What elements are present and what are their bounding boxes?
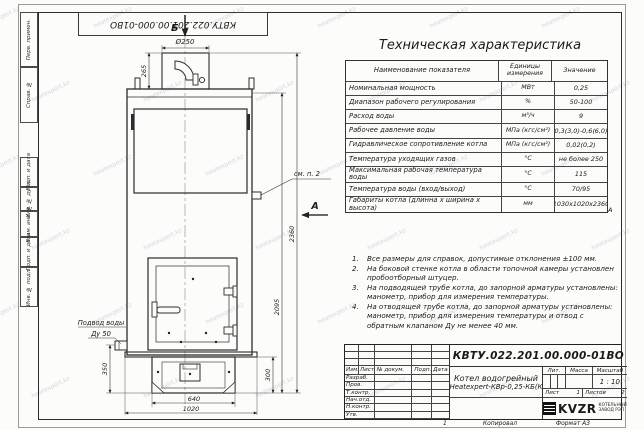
- water-inlet-label-1: Подвод воды: [78, 319, 124, 327]
- tb-sheets-label: Листов: [585, 390, 606, 396]
- spec-table: Наименование показателя Единицы измерени…: [345, 60, 608, 213]
- margin-box-podp-data-2: Подп. и дата: [20, 237, 38, 267]
- spec-cell: не более 250: [555, 153, 607, 166]
- kvzr-logo-subtext: КОТЕЛЬНЫЙ ЗАВОД РЭП: [599, 404, 627, 414]
- tb-signature-label: Утв.: [345, 412, 375, 419]
- dim-chimney-diameter: Ø250: [175, 38, 195, 46]
- tb-signature-row: Нач.отд.: [345, 397, 449, 404]
- tb-col-data: Дата: [432, 366, 449, 375]
- view-a-label: А: [310, 201, 318, 212]
- tb-signature-cell: [412, 397, 432, 404]
- spec-cell: Гидравлическое сопротивление котла: [346, 139, 502, 152]
- tb-scale-label: Масштаб: [593, 367, 627, 375]
- tb-signature-cell: [432, 404, 449, 411]
- tb-product-name: Котел водогрейный Heatexpert-КВр-0,25-КБ…: [450, 367, 542, 398]
- note-item: 1.Все размеры для справок, допустимые от…: [352, 254, 618, 263]
- spec-cell: Температура воды (вход/выход): [346, 183, 502, 196]
- spec-cell: Рабочее давление воды: [346, 124, 502, 137]
- dim-inlet-height: 350: [101, 363, 109, 375]
- spec-cell: 0,02(0,2): [555, 139, 607, 152]
- flue-cap: [199, 77, 204, 82]
- margin-label: Инв. № подл.: [26, 268, 32, 306]
- tb-signature-label: Т.контр.: [345, 390, 375, 397]
- tb-signature-row: Пров.: [345, 382, 449, 389]
- lifting-lug-right: [249, 78, 254, 89]
- product-name-line1: Котел водогрейный: [454, 374, 538, 383]
- spec-cell: 115: [555, 167, 607, 182]
- dim-base-width: 640: [188, 395, 200, 403]
- tb-signature-row: Т.контр.: [345, 390, 449, 397]
- tb-mass-label: Масса: [566, 367, 593, 375]
- margin-label: Перв. примен.: [26, 19, 32, 60]
- spec-col-name: Наименование показателя: [346, 61, 499, 81]
- dim-overall-width: 1020: [183, 405, 200, 413]
- furnace-door: [148, 258, 237, 350]
- spec-cell: Максимальная рабочая температура воды: [346, 167, 502, 182]
- spec-cell: 1030х1020х2360: [555, 197, 607, 212]
- tb-signature-cell: [375, 382, 413, 389]
- spec-cell: Номинальная мощность: [346, 82, 502, 95]
- tb-signature-cell: [432, 390, 449, 397]
- spec-cell: 50-100: [555, 96, 607, 109]
- spec-cell: м³/ч: [502, 110, 555, 123]
- tb-signature-cell: [412, 390, 432, 397]
- spec-cell: °С: [502, 183, 555, 196]
- title-block: Изм. Лист № докум. Подп. Дата Разраб.Про…: [344, 344, 622, 420]
- tb-col-podp: Подп.: [412, 366, 432, 375]
- spec-cell: МВт: [502, 82, 555, 95]
- tb-sheet-label: Лист: [545, 390, 559, 396]
- tb-col-izm: Изм.: [345, 366, 359, 375]
- note-item: 3.На подводящей трубе котла, до запорной…: [352, 283, 618, 301]
- margin-box-perv-primen: Перв. примен.: [20, 12, 38, 67]
- zone-letter: А: [608, 206, 612, 214]
- spec-cell: Температура уходящих газов: [346, 153, 502, 166]
- spec-col-units: Единицы измерения: [499, 61, 552, 81]
- door-handle-plate: [152, 302, 157, 317]
- spec-table-row: Расход водым³/ч9: [346, 109, 607, 123]
- note-number: 3.: [352, 283, 367, 301]
- margin-box-sprav-no: Справ. №: [20, 67, 38, 123]
- tb-signature-cell: [412, 404, 432, 411]
- tb-signature-label: Пров.: [345, 382, 375, 389]
- tb-signature-cell: [375, 375, 413, 382]
- spec-col-value: Значение: [552, 61, 607, 81]
- note-text: На боковой стенке котла в области топочн…: [367, 264, 618, 282]
- boiler-front-view: Б Ø250 265 см. п. 2 А: [38, 12, 338, 422]
- tb-signature-cell: [412, 382, 432, 389]
- note-number: 2.: [352, 264, 367, 282]
- spec-table-row: Габариты котла (длинна х ширина х высота…: [346, 196, 607, 212]
- tb-signature-row: Утв.: [345, 412, 449, 419]
- tb-sheet-value: 1: [576, 390, 580, 396]
- spec-table-row: Рабочее давление водыМПа (кгс/см²)0,3(3,…: [346, 123, 607, 137]
- tb-sheets-value: 2: [621, 390, 625, 396]
- note-number: 4.: [352, 302, 367, 329]
- zone-number: 1: [443, 420, 447, 427]
- tb-signature-cell: [432, 382, 449, 389]
- tb-signature-row: Разраб.: [345, 375, 449, 382]
- spec-cell: 0,3(3,0)-0,6(6,0): [555, 124, 607, 137]
- section-b-label: Б: [171, 23, 179, 34]
- tb-signature-cell: [375, 390, 413, 397]
- tb-col-docnum: № докум.: [375, 366, 413, 375]
- tb-signature-cell: [432, 397, 449, 404]
- spec-cell: 0,25: [555, 82, 607, 95]
- tb-signature-cell: [412, 412, 432, 419]
- title-block-left-grid: Изм. Лист № докум. Подп. Дата Разраб.Про…: [345, 345, 450, 419]
- door-hinge-top-pin: [233, 286, 237, 297]
- boiler-body: [127, 89, 252, 355]
- tb-signature-cell: [432, 412, 449, 419]
- dim-body-height: 2095: [273, 299, 281, 316]
- spec-table-row: Максимальная рабочая температура воды°С1…: [346, 166, 607, 182]
- tb-signature-cell: [412, 375, 432, 382]
- tb-lit-label: Лит.: [543, 367, 566, 375]
- margin-box-inv-podl: Инв. № подл.: [20, 267, 38, 307]
- notes-list: 1.Все размеры для справок, допустимые от…: [352, 254, 618, 331]
- note-item: 4.На отводящей трубе котла, до запорной …: [352, 302, 618, 329]
- tb-scale-value: 1 : 10: [593, 375, 627, 389]
- margin-label: Подп. и дата: [26, 233, 32, 270]
- note-text: На подводящей трубе котла, до запорной а…: [367, 283, 618, 301]
- note-text: Все размеры для справок, допустимые откл…: [367, 254, 618, 263]
- spec-cell: мм: [502, 197, 555, 212]
- spec-cell: МПа (кгс/см²): [502, 124, 555, 137]
- water-inlet-fitting: [115, 341, 127, 350]
- dim-base-height: 300: [264, 369, 272, 381]
- spec-cell: 9: [555, 110, 607, 123]
- tb-signature-cell: [375, 397, 413, 404]
- tb-signature-cell: [375, 404, 413, 411]
- kvzr-logo-icon: [543, 402, 556, 415]
- see-note-label: см. п. 2: [294, 170, 320, 178]
- furnace-door-inner: [156, 266, 229, 342]
- format-label: Формат А3: [538, 420, 608, 427]
- product-name-line2: Heatexpert-КВр-0,25-КБ(К: [450, 383, 543, 391]
- tb-signature-label: Н.контр.: [345, 404, 375, 411]
- dim-total-height: 2360: [288, 226, 296, 243]
- tb-signature-cell: [375, 412, 413, 419]
- upper-panel: [134, 109, 247, 193]
- pedestal: [152, 357, 235, 393]
- dim-chimney-height: 265: [140, 65, 148, 77]
- copied-label: Копировал: [460, 420, 540, 427]
- spec-cell: Габариты котла (длинна х ширина х высота…: [346, 197, 502, 212]
- spec-table-row: Диапазон рабочего регулирования%50-100: [346, 95, 607, 109]
- spec-table-row: Номинальная мощностьМВт0,25: [346, 81, 607, 95]
- tb-signature-label: Разраб.: [345, 375, 375, 382]
- spec-cell: 70/95: [555, 183, 607, 196]
- door-handle: [157, 307, 180, 313]
- note-text: На отводящей трубе котла, до запорной ар…: [367, 302, 618, 329]
- spec-cell: МПа (кгс/см²): [502, 139, 555, 152]
- lifting-lug-left: [135, 78, 140, 89]
- spec-table-title: Техническая характеристика: [350, 38, 610, 53]
- company-logo: KVZR КОТЕЛЬНЫЙ ЗАВОД РЭП: [543, 398, 627, 419]
- tb-signature-row: Н.контр.: [345, 404, 449, 411]
- spec-table-header: Наименование показателя Единицы измерени…: [346, 61, 607, 81]
- spec-cell: °С: [502, 153, 555, 166]
- note-item: 2.На боковой стенке котла в области топо…: [352, 264, 618, 282]
- spec-table-row: Температура уходящих газов°Сне более 250: [346, 152, 607, 166]
- tb-signature-cell: [432, 375, 449, 382]
- panel-clip-left: [131, 114, 134, 130]
- sampling-fitting: [252, 192, 261, 199]
- margin-label: Справ. №: [26, 81, 32, 108]
- tb-col-list: Лист: [359, 366, 375, 375]
- note-number: 1.: [352, 254, 367, 263]
- title-block-right: КВТУ.022.201.00.000-01ВО Котел водогрейн…: [450, 345, 627, 419]
- flue-elbow: [175, 61, 194, 80]
- spec-cell: °С: [502, 167, 555, 182]
- pedestal-inner-panel: [162, 362, 225, 388]
- tb-signature-label: Нач.отд.: [345, 397, 375, 404]
- door-hinge-bottom-pin: [233, 325, 237, 336]
- drawing-sheet: heatexpert.kzheatexpert.kzheatexpert.kzh…: [0, 0, 644, 430]
- flue-flange: [193, 74, 198, 85]
- panel-clip-right: [247, 114, 250, 130]
- spec-table-row: Гидравлическое сопротивление котлаМПа (к…: [346, 138, 607, 152]
- kvzr-logo-text: KVZR: [558, 402, 597, 416]
- spec-table-row: Температура воды (вход/выход)°С70/95: [346, 182, 607, 196]
- spec-cell: %: [502, 96, 555, 109]
- water-inlet-label-2: Ду 50: [90, 330, 111, 338]
- spec-cell: Диапазон рабочего регулирования: [346, 96, 502, 109]
- spec-cell: Расход воды: [346, 110, 502, 123]
- tb-doc-number: КВТУ.022.201.00.000-01ВО: [450, 345, 627, 367]
